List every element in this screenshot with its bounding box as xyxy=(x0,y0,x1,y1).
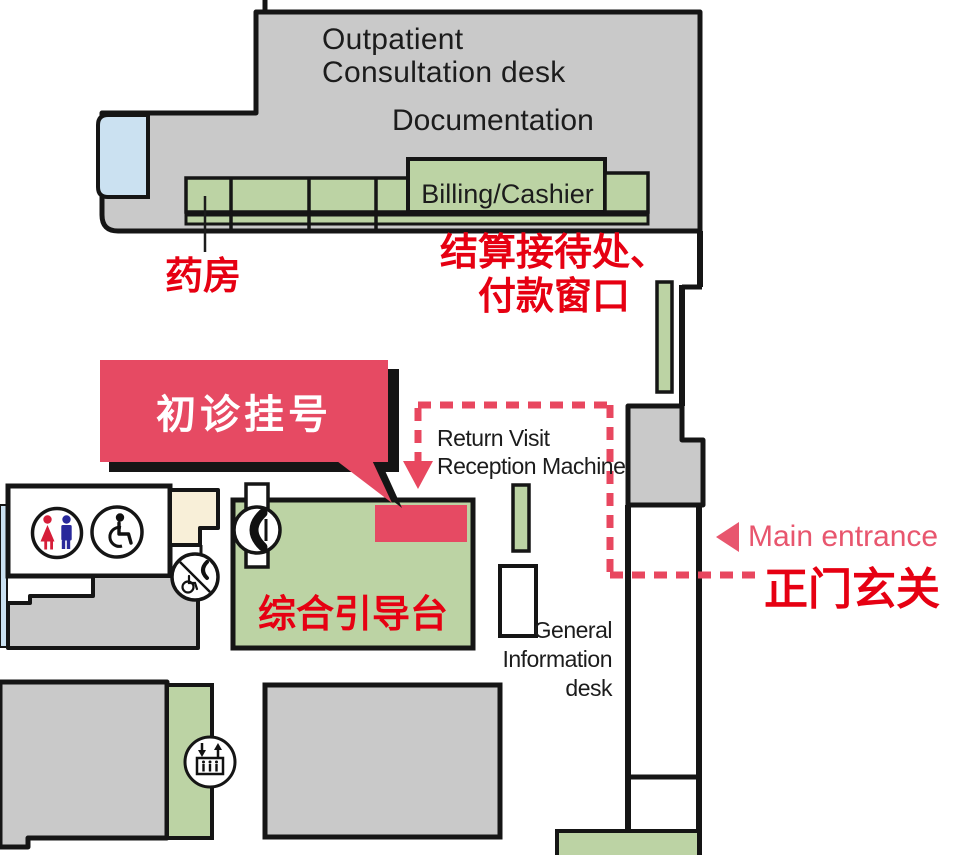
general-info-line3: desk xyxy=(455,674,612,703)
outpatient-line2: Consultation desk xyxy=(322,56,566,89)
general-info-line2: Information xyxy=(455,645,612,674)
general-info-desk-zh-label: 综合引导台 xyxy=(240,583,466,638)
gray-block-bottom-left xyxy=(0,682,167,847)
general-info-desk-label: General Information desk xyxy=(455,616,612,703)
outpatient-consultation-label: Outpatient Consultation desk xyxy=(322,23,566,89)
counter-front-ledge xyxy=(186,215,648,224)
return-visit-machine-label: Return Visit Reception Machine xyxy=(437,424,625,480)
left-arrow-icon xyxy=(716,522,739,552)
main-entrance-zh-label: 正门玄关 xyxy=(764,553,940,617)
hospital-floor-map: Outpatient Consultation desk Documentati… xyxy=(0,0,959,855)
gray-block-mid-left xyxy=(8,576,198,648)
blue-room xyxy=(98,115,148,197)
billing-reception-line2: 付款窗口 xyxy=(398,275,710,319)
gray-block-bottom-center xyxy=(265,685,500,837)
general-info-line1: General xyxy=(455,616,612,645)
wall-gray-block xyxy=(628,406,703,505)
first-visit-registration-label: 初诊挂号 xyxy=(100,360,388,462)
male-female-restroom-icon xyxy=(33,509,82,558)
billing-cashier-label: Billing/Cashier xyxy=(408,179,607,210)
counter-cell-right xyxy=(605,173,648,212)
right-entrance-walls xyxy=(557,231,703,855)
elevator-icon xyxy=(185,737,235,787)
outpatient-line1: Outpatient xyxy=(322,23,566,56)
cream-room xyxy=(170,490,218,545)
billing-reception-line1: 结算接待处、 xyxy=(398,231,710,275)
documentation-label: Documentation xyxy=(392,104,594,138)
return-visit-line2: Reception Machine xyxy=(437,452,625,480)
main-entrance-label: Main entrance xyxy=(748,520,938,554)
billing-reception-label: 结算接待处、 付款窗口 xyxy=(398,231,710,319)
return-visit-line1: Return Visit xyxy=(437,424,625,452)
reception-machine-green xyxy=(513,485,529,551)
pharmacy-label: 药房 xyxy=(165,245,241,300)
accessible-phone-icon xyxy=(172,554,218,600)
first-visit-counter-highlight xyxy=(375,505,467,542)
entrance-mat-green xyxy=(557,831,699,855)
down-arrow-icon xyxy=(403,461,433,489)
wheelchair-accessible-icon xyxy=(92,507,142,557)
